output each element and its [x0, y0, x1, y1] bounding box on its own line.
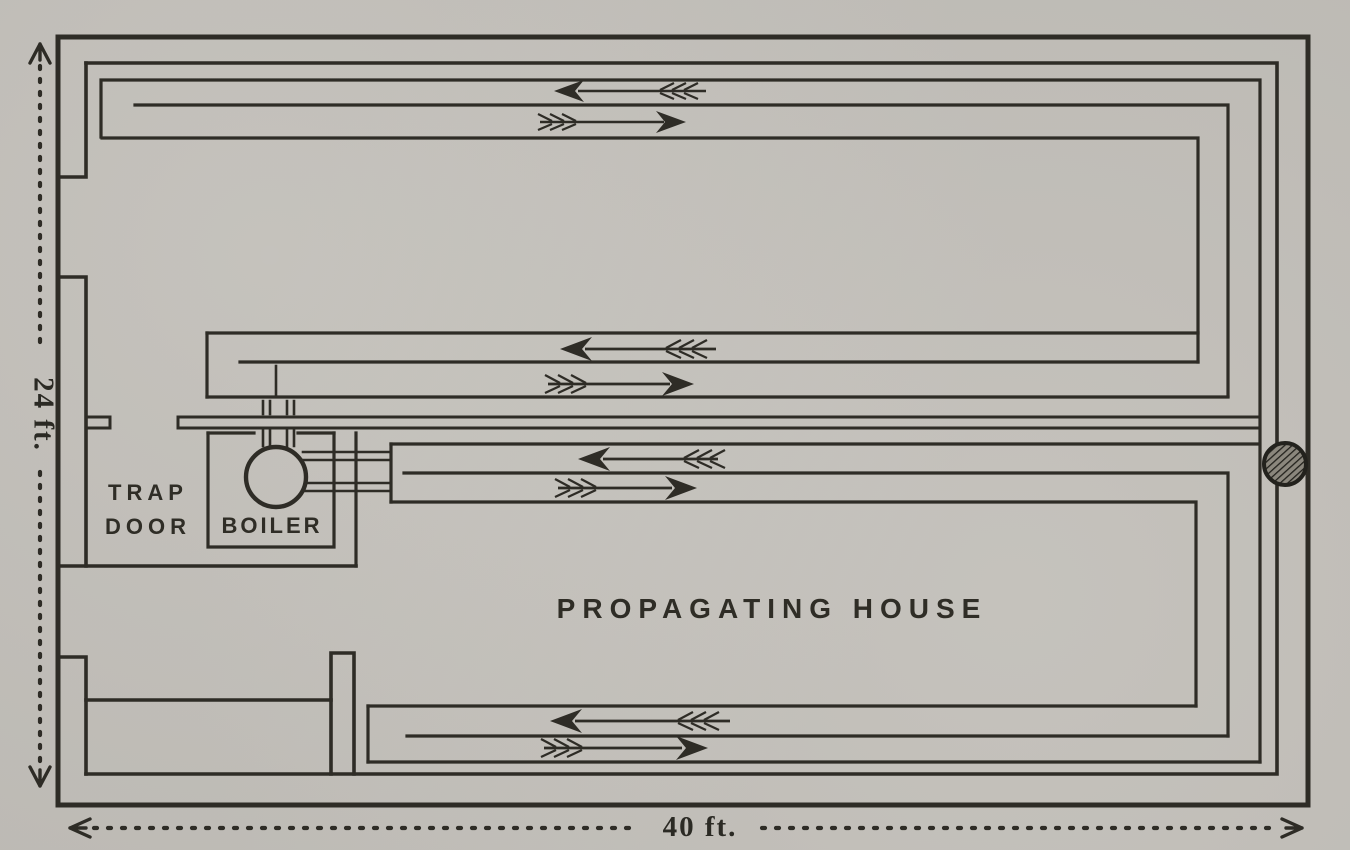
trap-door-label-line1: TRAP — [98, 476, 198, 510]
trap-door-label: TRAP DOOR — [98, 476, 198, 544]
upper-middle-pipe-run — [207, 333, 1228, 397]
bottom-pipe-run — [368, 706, 1260, 762]
dimension-arrow-icon — [1282, 819, 1302, 837]
boiler-pipe-stubs — [303, 452, 391, 491]
flow-arrow-left-icon — [550, 709, 730, 733]
outer-wall — [58, 37, 1308, 805]
boiler-label: BOILER — [208, 513, 336, 539]
plan-drawing — [0, 0, 1350, 850]
dimension-arrow-icon — [30, 767, 50, 786]
flow-arrow-right-icon — [555, 476, 697, 500]
flow-arrows — [538, 80, 730, 760]
boiler-riser-ticks — [263, 366, 294, 446]
trap-door-label-line2: DOOR — [98, 510, 198, 544]
top-pipe-run — [101, 80, 1260, 762]
inner-wall-left-middle-segment — [58, 277, 86, 566]
flow-arrow-left-icon — [560, 337, 716, 361]
chimney-hatched-circle-icon — [1264, 443, 1306, 485]
dimension-arrow-icon — [30, 44, 50, 63]
inner-wall-left-upper-segment — [58, 63, 86, 177]
lower-middle-pipe-run — [391, 444, 1259, 736]
boiler-circle-icon — [246, 447, 306, 507]
bench-partition — [88, 417, 1259, 428]
propagating-house-label: PROPAGATING HOUSE — [556, 593, 988, 625]
flow-arrow-left-icon — [554, 80, 706, 102]
engraving-plate: PROPAGATING HOUSE TRAP DOOR BOILER 24 ft… — [0, 0, 1350, 850]
inner-wall-left-lower-segment — [58, 657, 86, 774]
height-dimension-label: 24 ft. — [27, 354, 60, 476]
trough-right-pier — [331, 653, 354, 774]
flow-arrow-right-icon — [541, 736, 708, 760]
wall-stub — [88, 417, 110, 428]
dimension-arrow-icon — [70, 819, 90, 837]
flow-arrow-right-icon — [545, 372, 694, 396]
flow-arrow-right-icon — [538, 111, 686, 133]
water-trough — [86, 653, 354, 774]
width-dimension-label: 40 ft. — [638, 811, 762, 844]
flow-arrow-left-icon — [578, 447, 725, 471]
